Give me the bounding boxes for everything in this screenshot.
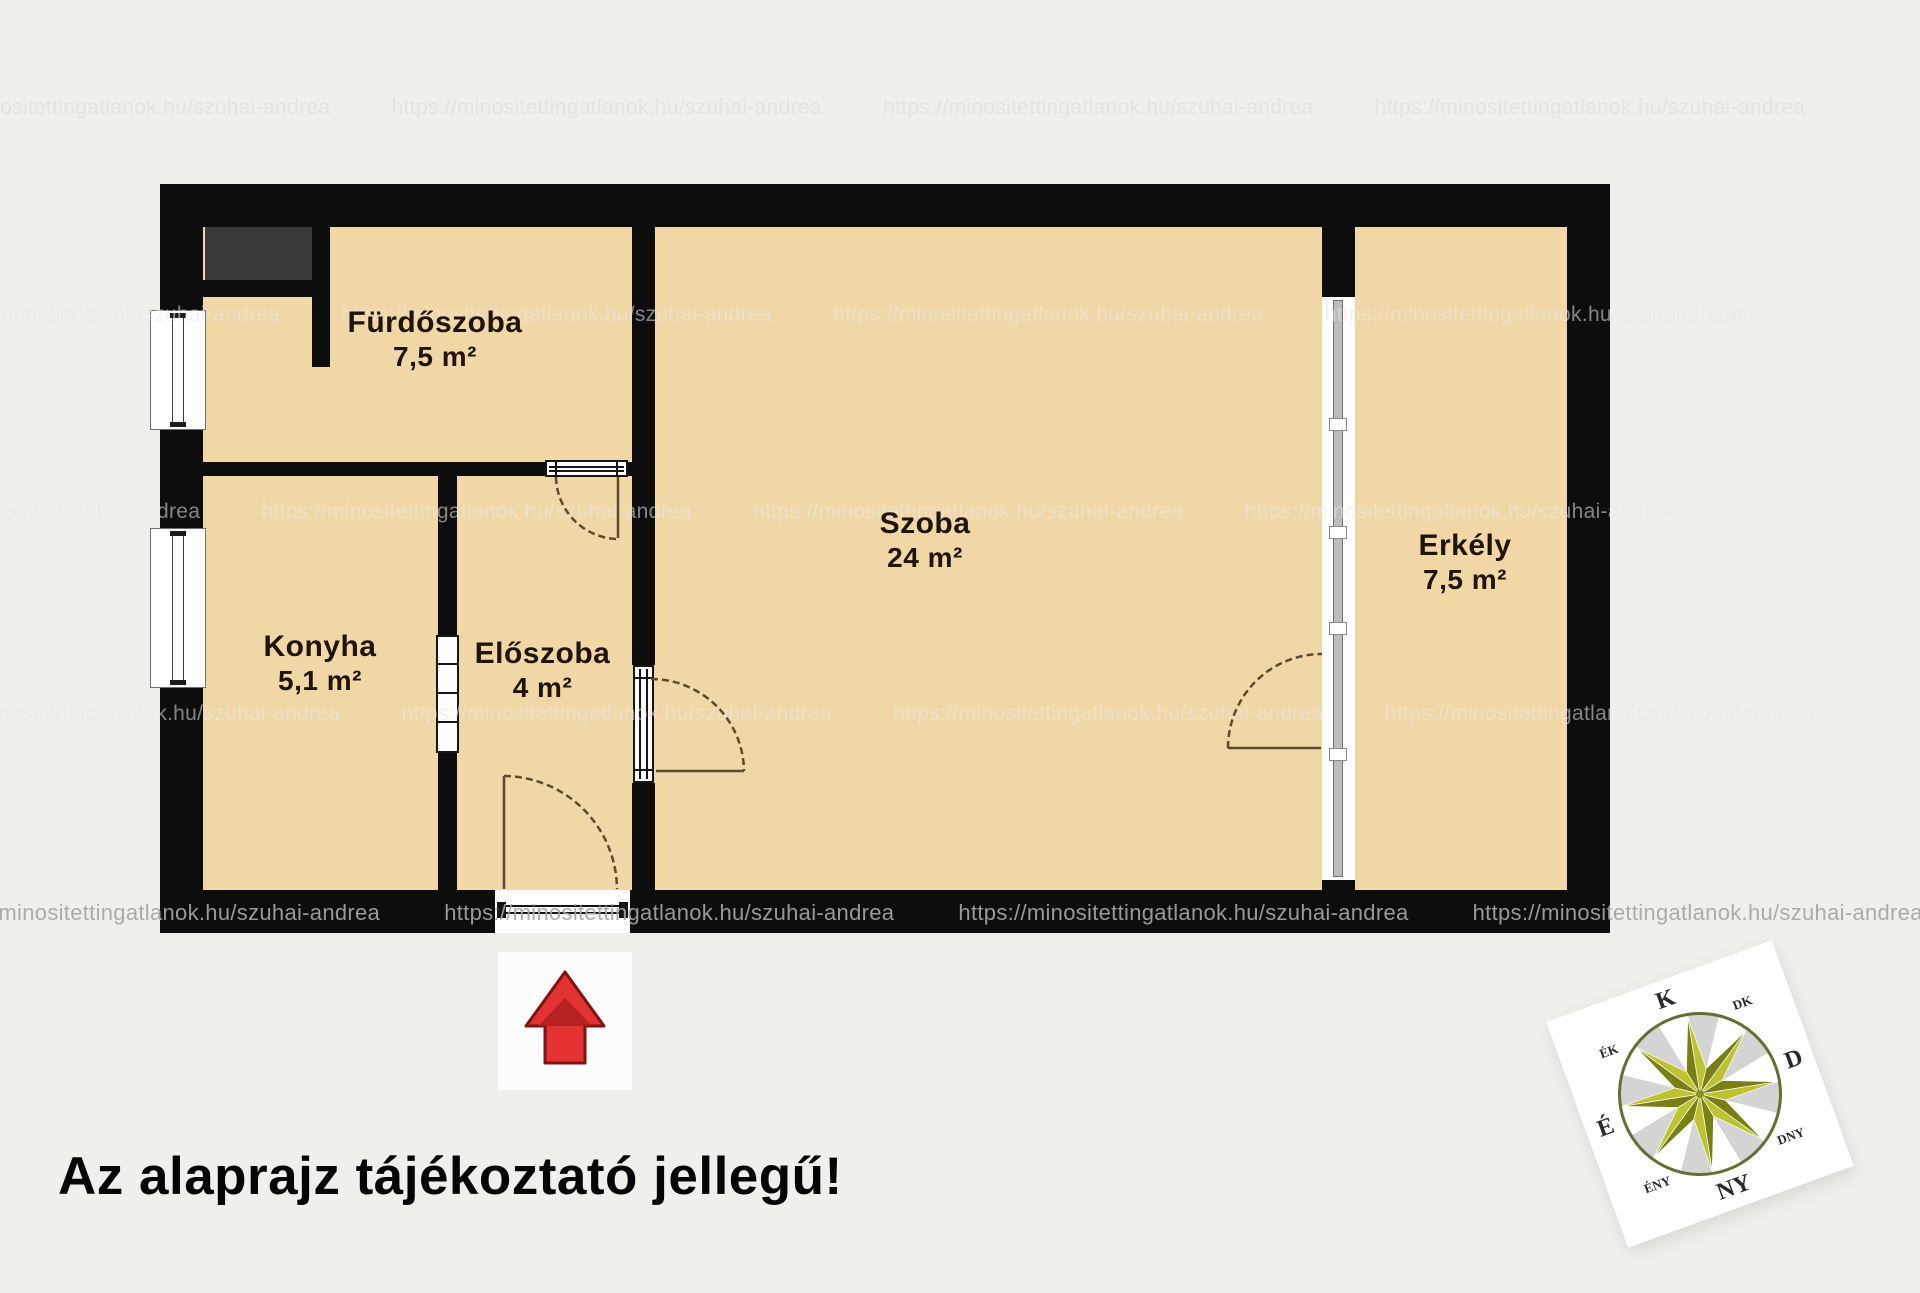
window-glazing-bar xyxy=(172,533,184,683)
window-cap xyxy=(170,422,186,427)
sill-line xyxy=(549,470,624,472)
watermark-row: https://minositettingatlanok.hu/szuhai-a… xyxy=(0,96,1866,120)
disclaimer-title: Az alaprajz tájékoztató jellegű! xyxy=(58,1146,843,1207)
glass-joint xyxy=(1329,526,1347,539)
glass-joint xyxy=(1329,748,1347,761)
entrance-arrow-box xyxy=(498,952,632,1090)
wall-right xyxy=(1567,184,1610,933)
floorplan-canvas: https://minositettingatlanok.hu/szuhai-a… xyxy=(0,0,1920,1293)
window-glazing-bar xyxy=(172,315,184,425)
window-cap xyxy=(170,531,186,536)
balcony-glass-wall xyxy=(1322,297,1355,880)
glass-joint xyxy=(1329,622,1347,635)
sill-divider xyxy=(616,462,618,475)
compass-star-icon xyxy=(1591,985,1809,1203)
wall-konyha-eloszoba-upper xyxy=(438,476,457,635)
sill-divider xyxy=(635,677,652,679)
balcony-partition-stub-bottom xyxy=(1322,880,1355,890)
hall-room-door xyxy=(633,665,654,783)
sill-line xyxy=(646,669,648,779)
shaft-band xyxy=(203,280,330,297)
shaft-stub xyxy=(312,227,330,367)
wall-bath-szoba-upper xyxy=(632,227,655,665)
compass-rose: K DK D DNY NY ÉNY É ÉK xyxy=(1546,940,1854,1248)
opening-rung xyxy=(438,663,457,665)
glass-mullion xyxy=(1333,300,1343,877)
opening-rung xyxy=(438,721,457,723)
sill-line xyxy=(499,912,626,914)
window-kitchen xyxy=(150,528,206,688)
wall-bottom xyxy=(160,890,1610,933)
window-cap xyxy=(170,680,186,685)
compass-label-d: D xyxy=(1781,1044,1807,1075)
entrance-door-sill xyxy=(495,890,630,933)
window-cap xyxy=(170,313,186,318)
kitchen-hall-opening xyxy=(436,635,459,753)
compass-label-e: É xyxy=(1594,1113,1618,1144)
balcony-partition-stub-top xyxy=(1322,227,1355,297)
opening-rung xyxy=(438,692,457,694)
compass-label-k: K xyxy=(1652,984,1679,1016)
wall-bath-bottom-stub xyxy=(628,462,632,476)
sill-line xyxy=(639,669,641,779)
sill-line xyxy=(549,466,624,468)
wall-bath-bottom xyxy=(203,462,545,476)
glass-joint xyxy=(1329,418,1347,431)
sill-divider xyxy=(555,462,557,475)
sill-line xyxy=(499,905,626,907)
bathroom-door xyxy=(545,460,628,477)
sill-end-block xyxy=(497,902,506,918)
wall-konyha-eloszoba-lower xyxy=(438,753,457,890)
shaft-box xyxy=(205,227,312,280)
sill-divider xyxy=(635,769,652,771)
wall-top xyxy=(160,184,1610,227)
wall-bath-szoba-lower xyxy=(632,783,655,890)
sill-end-block xyxy=(619,902,628,918)
apartment-floor xyxy=(203,227,1567,890)
window-bathroom xyxy=(150,310,206,430)
